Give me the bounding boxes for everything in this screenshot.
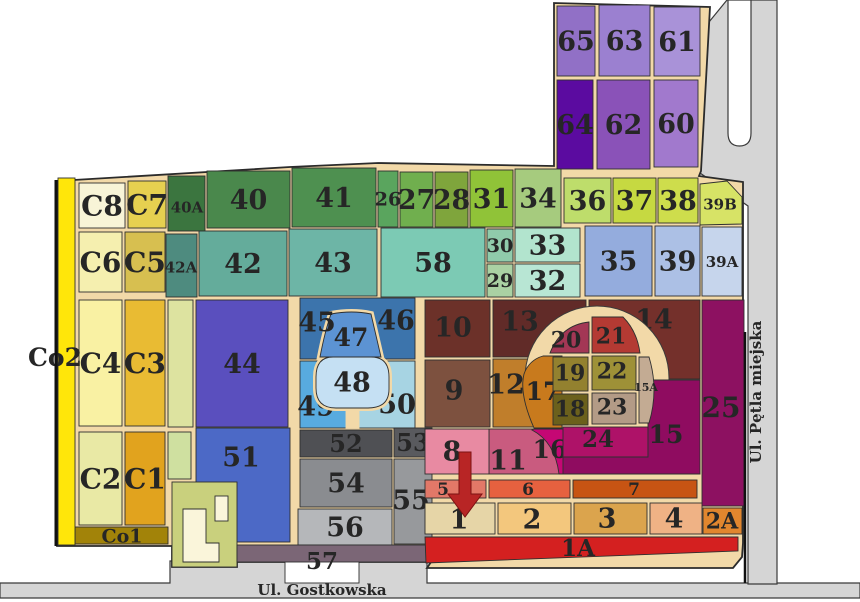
- plot-C8: C8: [79, 183, 125, 228]
- plot-47: 47: [320, 312, 381, 357]
- plot-40A: 40A: [168, 176, 205, 231]
- plot-41: 41: [292, 168, 376, 227]
- plot-8: 8: [425, 429, 489, 474]
- plot-30: 30: [487, 229, 513, 262]
- plot-4: 4: [650, 503, 702, 534]
- plot-62: 62: [597, 80, 650, 169]
- plot-2A: 2A: [703, 508, 742, 535]
- plot-35: 35: [585, 226, 652, 296]
- plot-Co1: Co1: [75, 526, 168, 548]
- plot-39A: 39A: [702, 227, 742, 296]
- plot-18: 18: [553, 394, 588, 425]
- plot-32: 32: [515, 264, 580, 297]
- plot-61: 61: [654, 7, 700, 76]
- plot-7: 7: [573, 480, 697, 500]
- plot-C5: C5: [124, 232, 166, 292]
- plot-36: 36: [564, 178, 611, 223]
- plot-22: 22: [592, 356, 636, 390]
- plot-43: 43: [289, 229, 377, 296]
- map-stage: 656361646260C8C740A404126272831343637383…: [0, 0, 860, 602]
- plot-28: 28: [433, 172, 471, 227]
- plot-64: 64: [556, 80, 594, 169]
- plot-C7: C7: [126, 181, 168, 228]
- plot-C6: C6: [79, 232, 122, 292]
- cemetery-plot-map: 656361646260C8C740A404126272831343637383…: [0, 0, 860, 602]
- plot-34: 34: [515, 169, 561, 227]
- plot-27: 27: [398, 172, 436, 227]
- plot-42: 42: [199, 231, 287, 296]
- plot-9: 9: [425, 360, 490, 427]
- plot-40: 40: [207, 171, 290, 228]
- plot-33: 33: [515, 228, 580, 262]
- plot-54: 54: [300, 459, 392, 507]
- plot-37: 37: [613, 178, 656, 223]
- green-strip-lower: [168, 432, 191, 479]
- plot-56: 56: [298, 509, 392, 545]
- plot-60: 60: [654, 80, 698, 167]
- building-annex: [215, 496, 228, 521]
- plot-3: 3: [574, 503, 647, 534]
- plot-C1: C1: [124, 432, 166, 525]
- plot-44: 44: [196, 300, 288, 427]
- plot-23: 23: [592, 393, 636, 424]
- plot-C3: C3: [124, 300, 166, 426]
- plot-24: 24: [563, 426, 648, 457]
- plot-26: 26: [375, 171, 401, 227]
- plot-65: 65: [557, 6, 595, 76]
- plot-38: 38: [658, 178, 698, 223]
- plot-6: 6: [489, 480, 570, 500]
- plot-52: 52: [300, 429, 392, 458]
- green-strip-upper: [168, 300, 193, 427]
- plot-63: 63: [599, 5, 650, 76]
- plot-19: 19: [553, 357, 588, 391]
- plot-31: 31: [470, 170, 513, 227]
- plot-25: 25: [702, 300, 744, 506]
- plot-39: 39: [655, 226, 700, 296]
- plot-58: 58: [381, 228, 485, 297]
- gate-box-57: [285, 560, 359, 583]
- turning-loop-island: [728, 0, 751, 146]
- plot-42A: 42A: [165, 234, 198, 297]
- plot-10: 10: [425, 300, 490, 357]
- plot-2: 2: [498, 503, 571, 535]
- plot-48: 48: [316, 357, 389, 408]
- plot-C4: C4: [79, 300, 122, 426]
- plot-C2: C2: [79, 432, 122, 525]
- plot-29: 29: [487, 264, 513, 297]
